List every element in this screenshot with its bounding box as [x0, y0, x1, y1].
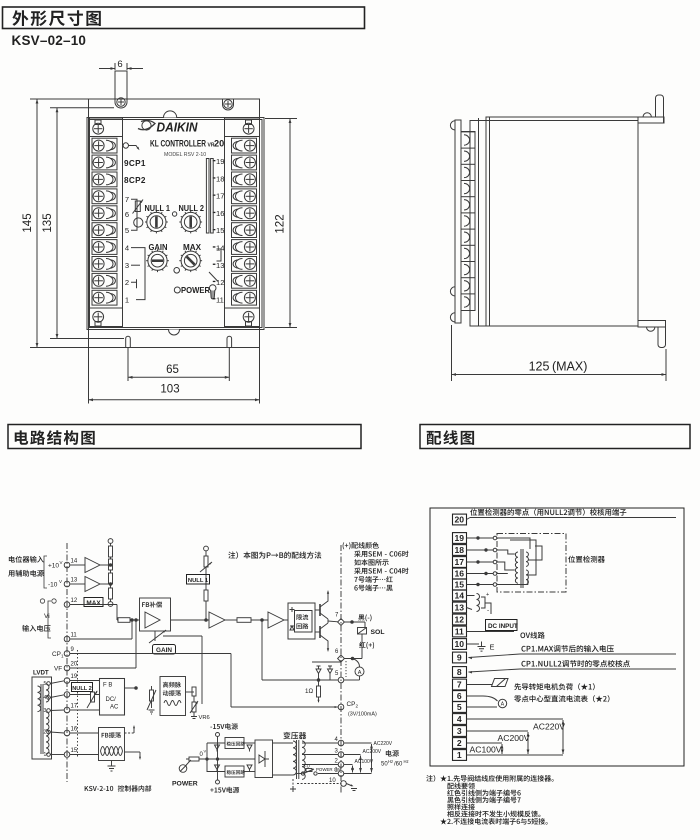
svg-text:VF: VF [54, 666, 62, 673]
svg-text:9: 9 [457, 653, 462, 663]
svg-text:12: 12 [455, 615, 465, 625]
svg-text:NULL 1: NULL 1 [188, 578, 209, 584]
svg-text:GAIN: GAIN [149, 243, 168, 252]
svg-text:125 (MAX): 125 (MAX) [529, 360, 588, 374]
svg-text:11: 11 [71, 633, 78, 639]
svg-text:DC/: DC/ [106, 697, 117, 703]
svg-text:2: 2 [356, 704, 359, 709]
svg-text:11: 11 [216, 295, 224, 304]
svg-text:POWER: POWER [172, 781, 198, 788]
svg-text:AC100V: AC100V [470, 745, 502, 755]
svg-text:5: 5 [457, 702, 462, 712]
svg-text:122: 122 [275, 214, 287, 233]
svg-text:3: 3 [457, 726, 462, 736]
svg-text:NULL 2: NULL 2 [72, 686, 91, 692]
svg-text:CP: CP [347, 701, 356, 708]
svg-text:6: 6 [117, 59, 122, 70]
svg-text:4: 4 [457, 714, 462, 724]
svg-text:12: 12 [71, 598, 78, 604]
svg-text:13: 13 [71, 578, 78, 584]
svg-text:4: 4 [44, 695, 47, 701]
svg-text:MAX: MAX [86, 600, 101, 607]
svg-text:V: V [59, 579, 62, 584]
svg-text:AC: AC [110, 705, 119, 711]
svg-text:2: 2 [44, 730, 47, 736]
svg-text:8: 8 [457, 667, 462, 677]
svg-text:19: 19 [216, 157, 224, 166]
svg-text:MODEL RSV 2-10: MODEL RSV 2-10 [164, 152, 206, 158]
svg-text:15: 15 [216, 226, 224, 235]
svg-text:GAIN: GAIN [156, 647, 172, 654]
svg-text:103: 103 [160, 384, 179, 396]
svg-text:VR6: VR6 [199, 715, 210, 721]
svg-text:14: 14 [216, 244, 224, 253]
svg-text:V: V [60, 560, 63, 565]
svg-text:Vi: Vi [44, 613, 50, 620]
svg-text:17: 17 [71, 704, 78, 710]
svg-text:2: 2 [125, 278, 129, 287]
svg-text:POWER SW: POWER SW [316, 767, 342, 772]
svg-text:19: 19 [455, 533, 465, 543]
svg-text:17: 17 [216, 192, 224, 201]
svg-text:2: 2 [457, 738, 462, 748]
svg-text:11: 11 [455, 627, 464, 637]
svg-text:+10: +10 [48, 563, 59, 570]
svg-text:15: 15 [455, 580, 465, 590]
svg-text:17: 17 [455, 557, 465, 567]
svg-text:13: 13 [216, 261, 224, 270]
svg-text:NULL 2: NULL 2 [179, 204, 205, 213]
svg-text:KL CONTROLLER: KL CONTROLLER [150, 139, 206, 149]
svg-text:1: 1 [61, 654, 64, 659]
svg-text:145: 145 [22, 213, 34, 232]
svg-text:14: 14 [71, 559, 78, 565]
svg-text:AC100V: AC100V [355, 759, 374, 765]
svg-text:20: 20 [214, 139, 224, 149]
svg-text:CP: CP [52, 651, 61, 658]
svg-text:5: 5 [44, 681, 47, 687]
svg-text:20: 20 [455, 515, 465, 525]
svg-text:7: 7 [125, 195, 129, 204]
svg-text:10: 10 [455, 639, 465, 649]
svg-text:19: 19 [71, 674, 78, 680]
svg-text:POWER: POWER [181, 286, 210, 295]
svg-text:18: 18 [455, 545, 465, 555]
svg-text:SOL: SOL [371, 629, 385, 636]
svg-text:DC INPUT: DC INPUT [488, 623, 518, 630]
svg-text:4: 4 [125, 244, 129, 253]
svg-text:6: 6 [457, 691, 462, 701]
svg-text:3: 3 [125, 261, 129, 270]
svg-text:1: 1 [44, 752, 47, 758]
svg-text:8CP2: 8CP2 [124, 176, 146, 185]
svg-text:9CP1: 9CP1 [124, 159, 146, 168]
svg-text:13: 13 [455, 603, 465, 613]
svg-text:DAIKIN: DAIKIN [157, 120, 199, 135]
svg-text:135: 135 [42, 213, 54, 232]
svg-text:KSV–02–10: KSV–02–10 [12, 33, 87, 48]
svg-text:FU: FU [304, 764, 310, 769]
svg-text:1Ω: 1Ω [305, 688, 313, 695]
svg-text:AC200V: AC200V [363, 749, 382, 755]
svg-text:-: - [487, 607, 489, 614]
svg-text:A: A [358, 670, 362, 676]
svg-text:18: 18 [216, 175, 224, 184]
svg-text:16: 16 [455, 569, 465, 579]
svg-text:20: 20 [71, 662, 78, 668]
svg-text:+: + [486, 592, 489, 598]
svg-text:F B: F B [103, 683, 112, 689]
svg-text:Hz: Hz [404, 759, 409, 764]
svg-text:7: 7 [457, 680, 462, 690]
svg-text:NULL 1: NULL 1 [145, 204, 171, 213]
svg-text:16: 16 [71, 727, 78, 733]
svg-text:AC200V: AC200V [498, 733, 530, 743]
svg-text:5: 5 [125, 226, 129, 235]
svg-text:(3V/100mA): (3V/100mA) [348, 712, 377, 718]
svg-text:12: 12 [216, 278, 224, 287]
svg-text:-10: -10 [48, 582, 58, 589]
svg-text:15: 15 [71, 748, 78, 754]
svg-text:65: 65 [166, 364, 179, 376]
svg-text:MAX: MAX [183, 243, 202, 252]
svg-text:E: E [490, 643, 495, 652]
svg-text:10: 10 [329, 778, 336, 784]
svg-text:6: 6 [125, 210, 129, 219]
svg-text:3: 3 [44, 708, 47, 714]
svg-text:AC220V: AC220V [533, 722, 565, 732]
svg-text:14: 14 [455, 591, 465, 601]
svg-text:16: 16 [216, 209, 224, 218]
svg-text:/60: /60 [394, 762, 403, 768]
svg-text:V: V [204, 749, 207, 754]
svg-text:Hz: Hz [388, 759, 393, 764]
svg-text:AC220V: AC220V [374, 741, 393, 747]
svg-text:1: 1 [457, 750, 462, 760]
svg-text:1: 1 [125, 295, 129, 304]
svg-text:LVDT: LVDT [33, 670, 49, 677]
